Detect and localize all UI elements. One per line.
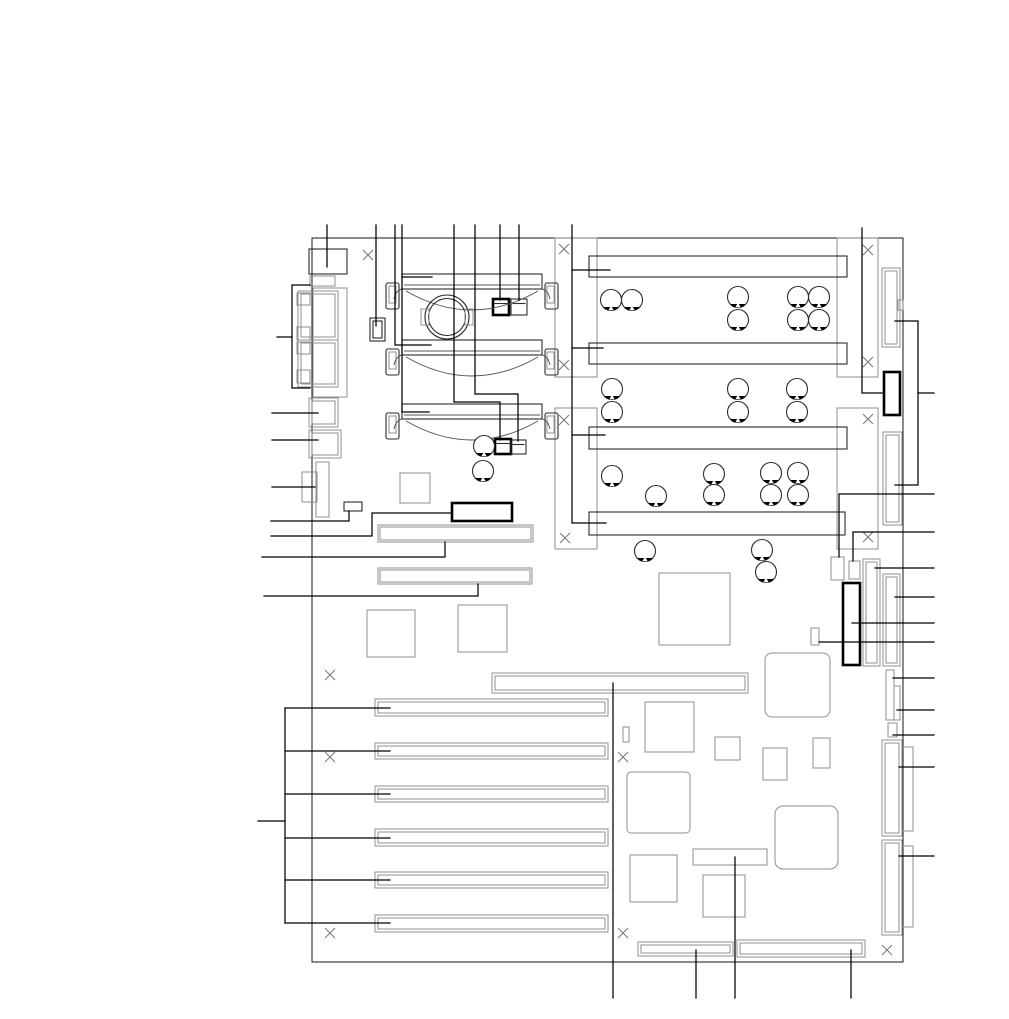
jumper-bottom-2 <box>511 440 526 454</box>
port-connector-4-inner <box>312 433 338 455</box>
jumper-top-1 <box>493 299 509 315</box>
chip-6 <box>763 748 787 780</box>
pci-slot-4-inner <box>378 832 605 843</box>
board-outline <box>312 238 903 962</box>
chip-11 <box>703 875 745 917</box>
chip-5 <box>765 653 830 717</box>
lead-slot-mid-2 <box>264 584 478 596</box>
io-step <box>310 276 335 286</box>
chip-8 <box>627 772 690 833</box>
power-connector-bold <box>884 372 900 415</box>
dsub-screw-2a <box>297 342 310 354</box>
port-connector-5b <box>316 462 329 517</box>
dimm-socket-2-wing-right <box>542 355 550 365</box>
oscillator-inner <box>373 321 382 338</box>
battery-outer <box>425 295 469 339</box>
page <box>0 0 1009 1019</box>
connector-bottom-mid <box>693 849 767 865</box>
jumper-block-left <box>344 502 362 511</box>
pci-slot-6-inner <box>378 918 605 929</box>
jumper-top-2 <box>511 299 527 315</box>
processor-slot-3 <box>589 427 847 449</box>
lead-jumper-bottom-1 <box>454 225 500 440</box>
keyboard-mouse-connector <box>309 249 347 274</box>
connector-tall-d-inner <box>886 577 897 663</box>
chip-small-1 <box>400 473 430 503</box>
external-connector-1-inner <box>885 743 899 833</box>
jumper-bottom-1 <box>495 439 511 454</box>
chip-mid-1 <box>367 610 415 657</box>
connector-r3-inner <box>886 435 899 522</box>
connector-bold-e <box>843 583 860 665</box>
dimm-socket-3-latch-left <box>386 413 399 439</box>
battery-inner <box>429 299 466 336</box>
component-small-2 <box>623 727 629 742</box>
dsub-port-1 <box>298 291 338 340</box>
dsub-port-1-inner <box>301 294 335 337</box>
slot-mid-1 <box>378 525 533 542</box>
dimm-socket-1-body-arc <box>406 291 538 310</box>
dimm-socket-1-latch-left <box>386 283 399 309</box>
bracket-right-connectors <box>895 321 918 485</box>
dimm-socket-3-wing-left <box>394 419 402 429</box>
slot-mid-2-inner <box>380 570 530 582</box>
external-connector-2-inner <box>885 843 899 932</box>
wide-connector-inner <box>495 676 745 690</box>
processor-slot-1 <box>589 256 847 277</box>
lead-slot-mid-1 <box>262 542 445 557</box>
dimm-socket-2-latch-left <box>386 349 399 375</box>
lead-jumper-bottom-2 <box>475 225 518 441</box>
dimm-socket-1-wing-right <box>542 289 550 299</box>
pci-slot-1-inner <box>378 702 605 713</box>
dimm-socket-2-body-arc <box>406 357 538 376</box>
retention-bracket-b-right <box>837 408 878 549</box>
slot-mid-1-inner <box>380 527 531 540</box>
bottom-connector-a <box>638 942 733 956</box>
chip-4 <box>715 737 740 760</box>
dsub-port-2-inner <box>301 343 335 384</box>
dimm-socket-3-wing-right <box>542 419 550 429</box>
pci-slot-2-inner <box>378 746 605 756</box>
port-connector-4 <box>309 430 341 458</box>
pci-slot-5-inner <box>378 875 605 885</box>
chip-10 <box>630 855 677 902</box>
dsub-screw-1a <box>297 293 310 305</box>
dsub-port-2 <box>298 340 338 387</box>
chip-mid-2 <box>458 605 507 652</box>
lead-dimm-1 <box>402 225 432 277</box>
processor-slot-2 <box>589 343 847 364</box>
processor-slot-4 <box>589 512 845 535</box>
dimm-socket-1 <box>402 274 542 289</box>
retention-bracket-a-right <box>837 238 878 377</box>
dsub-screw-2b <box>297 370 310 383</box>
connector-r1-inner <box>885 271 897 344</box>
bottom-connector-a-inner <box>641 945 730 953</box>
dsub-screw-1b <box>297 327 310 340</box>
external-connector-2b <box>902 846 913 927</box>
pci-slot-2 <box>375 743 608 759</box>
connector-tall-c-inner <box>866 562 877 663</box>
dimm-socket-2 <box>402 340 542 355</box>
dimm-socket-2-wing-left <box>394 355 402 365</box>
pci-slot-5 <box>375 872 608 888</box>
connector-small-f <box>811 628 819 645</box>
connector-bold-mid <box>452 503 512 521</box>
connector-narrow-h <box>894 686 900 720</box>
retention-bracket-a-left <box>555 238 597 377</box>
lead-connector-small-b <box>853 532 934 561</box>
chip-7 <box>813 738 830 768</box>
external-connector-1b <box>902 747 913 831</box>
pci-slot-3-inner <box>378 789 605 799</box>
chip-9 <box>775 806 838 869</box>
connector-small-a <box>831 557 844 580</box>
pci-slot-3 <box>375 786 608 802</box>
motherboard-diagram <box>0 0 1009 1019</box>
retention-bracket-b-left <box>555 408 597 549</box>
bottom-connector-b-inner <box>740 943 862 954</box>
chip-large-1 <box>659 573 730 645</box>
chip-3 <box>645 702 694 752</box>
connector-small-b <box>849 561 860 579</box>
lead-jumper-left <box>271 511 349 521</box>
